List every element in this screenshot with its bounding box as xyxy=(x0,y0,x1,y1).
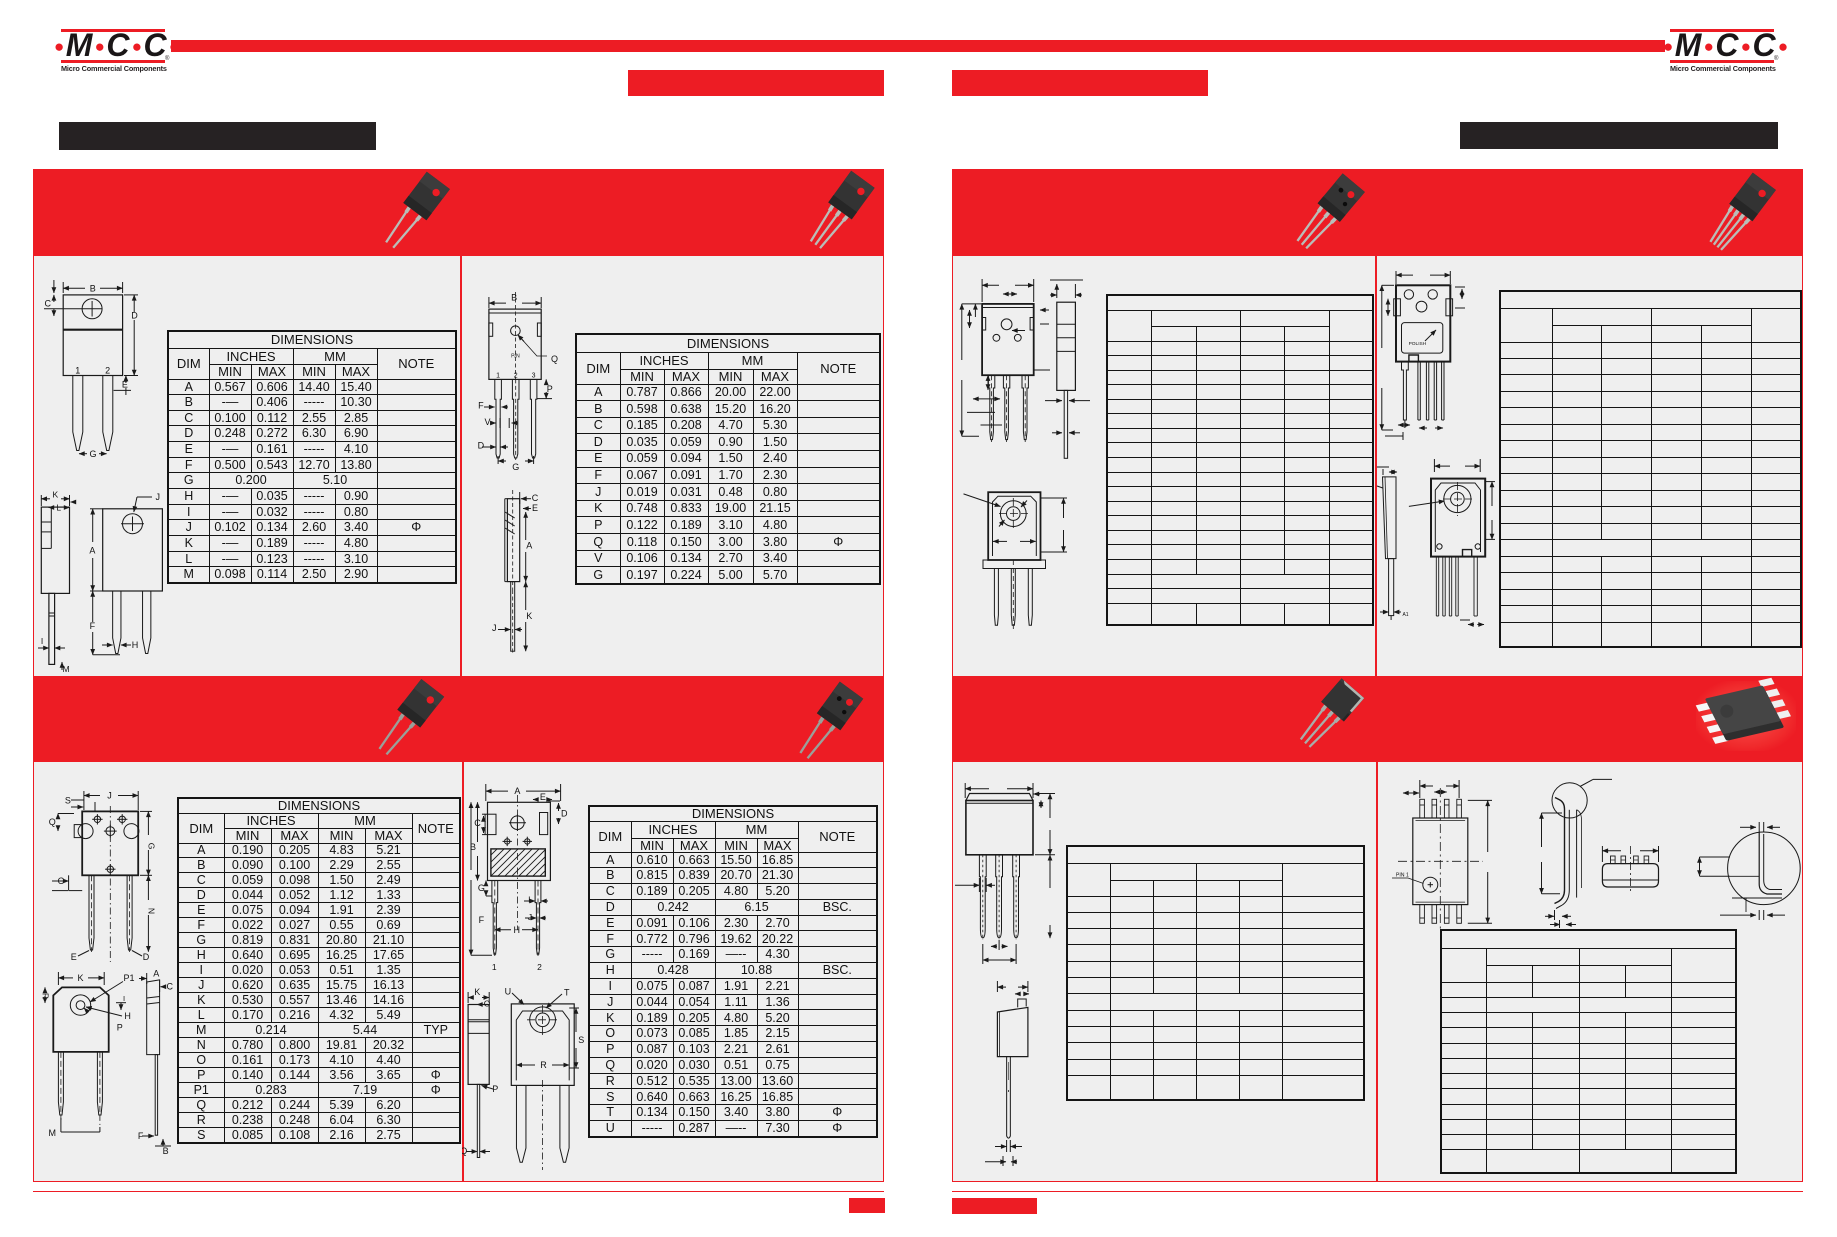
svg-text:P: P xyxy=(117,1023,123,1033)
svg-text:E: E xyxy=(532,503,538,513)
svg-text:D: D xyxy=(143,952,150,962)
svg-text:A: A xyxy=(514,786,520,796)
svg-text:S: S xyxy=(578,1035,584,1045)
svg-text:2: 2 xyxy=(537,962,542,972)
svg-text:N: N xyxy=(147,908,157,914)
svg-text:1: 1 xyxy=(496,373,500,380)
svg-text:Q: Q xyxy=(49,817,56,827)
svg-text:K: K xyxy=(77,973,83,983)
svg-text:T: T xyxy=(564,988,570,998)
svg-text:1: 1 xyxy=(75,366,80,376)
svg-text:Q: Q xyxy=(551,354,558,364)
svg-text:D: D xyxy=(131,311,138,321)
svg-text:R: R xyxy=(41,993,51,999)
svg-text:H: H xyxy=(124,1011,131,1021)
svg-text:B: B xyxy=(90,284,96,294)
svg-text:C: C xyxy=(45,299,52,309)
svg-text:I: I xyxy=(123,994,125,1003)
svg-text:PIN 1: PIN 1 xyxy=(1396,873,1409,879)
svg-text:M: M xyxy=(62,664,69,674)
svg-text:V: V xyxy=(484,417,490,427)
svg-text:S: S xyxy=(65,796,71,806)
svg-text:G: G xyxy=(89,449,96,459)
svg-text:U: U xyxy=(505,987,512,997)
svg-text:J: J xyxy=(107,791,112,801)
svg-text:J: J xyxy=(155,492,160,502)
svg-text:A: A xyxy=(526,541,532,551)
svg-text:G: G xyxy=(512,462,519,472)
svg-text:G: G xyxy=(478,883,485,893)
svg-text:P: P xyxy=(492,1084,498,1094)
svg-text:E: E xyxy=(540,792,546,802)
svg-text:H: H xyxy=(132,640,139,650)
svg-text:3: 3 xyxy=(532,373,536,380)
svg-text:A1: A1 xyxy=(1402,612,1408,618)
svg-text:C: C xyxy=(167,982,174,992)
svg-text:D: D xyxy=(478,441,485,451)
svg-text:K: K xyxy=(52,490,58,500)
svg-text:1: 1 xyxy=(492,962,497,972)
svg-text:B: B xyxy=(163,1146,169,1156)
svg-text:A: A xyxy=(153,969,159,979)
svg-text:A: A xyxy=(89,546,95,556)
svg-text:J: J xyxy=(492,623,497,633)
svg-text:I: I xyxy=(528,895,530,905)
svg-text:F: F xyxy=(479,915,485,925)
svg-text:D: D xyxy=(561,809,568,819)
svg-text:M: M xyxy=(49,1128,57,1138)
svg-text:P/N: P/N xyxy=(511,354,520,360)
svg-text:2: 2 xyxy=(105,366,110,376)
svg-text:K: K xyxy=(474,987,480,997)
svg-text:F: F xyxy=(478,401,484,411)
svg-text:2: 2 xyxy=(514,373,518,380)
svg-text:H: H xyxy=(513,925,520,935)
svg-text:J: J xyxy=(528,912,532,922)
svg-text:E: E xyxy=(71,952,77,962)
svg-text:G: G xyxy=(147,843,157,850)
svg-text:F: F xyxy=(90,621,96,631)
svg-text:I: I xyxy=(41,636,43,646)
svg-text:P: P xyxy=(547,384,553,394)
svg-text:P1: P1 xyxy=(123,973,134,983)
svg-text:R: R xyxy=(540,1060,547,1070)
svg-text:POLISH: POLISH xyxy=(1409,341,1427,347)
svg-text:B: B xyxy=(511,293,517,303)
svg-text:E: E xyxy=(122,380,128,390)
svg-text:K: K xyxy=(526,611,532,621)
svg-text:C: C xyxy=(532,493,539,503)
